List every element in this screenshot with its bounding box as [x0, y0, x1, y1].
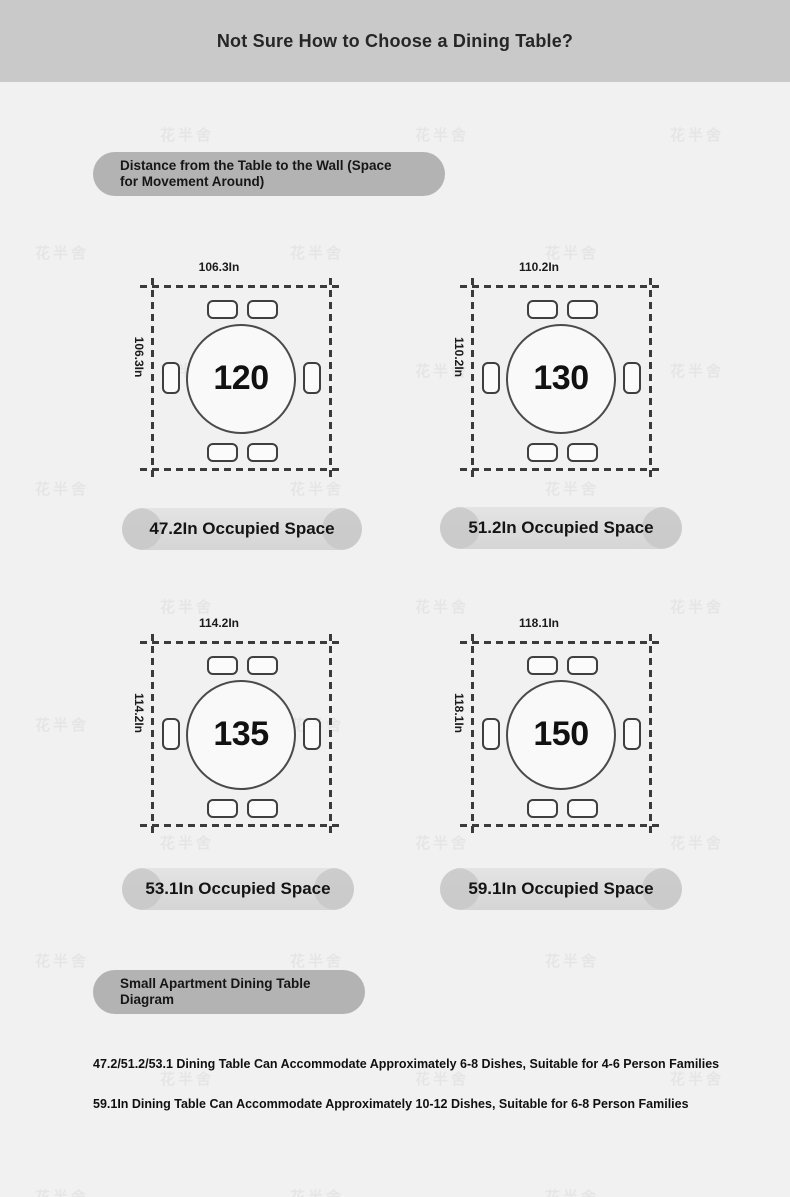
chair-top-left-icon — [207, 300, 238, 319]
occupied-space-badge-120: 47.2In Occupied Space — [122, 508, 362, 550]
chair-top-left-icon — [527, 300, 558, 319]
chair-top-right-icon — [247, 300, 278, 319]
dashed-boundary-right — [329, 634, 332, 834]
occupied-space-label: 53.1In Occupied Space — [145, 879, 330, 899]
dashed-boundary-bottom — [460, 468, 663, 471]
occupied-space-badge-130: 51.2In Occupied Space — [440, 507, 682, 549]
round-table-icon: 150 — [506, 680, 616, 790]
distance-section-badge: Distance from the Table to the Wall (Spa… — [93, 152, 445, 196]
chair-left-icon — [162, 362, 180, 394]
chair-left-icon — [162, 718, 180, 750]
chair-top-right-icon — [567, 300, 598, 319]
height-dimension-label: 114.2In — [132, 692, 146, 732]
round-table-icon: 135 — [186, 680, 296, 790]
dashed-boundary-top — [140, 641, 343, 644]
width-dimension-label: 118.1In — [519, 616, 559, 630]
occupied-space-badge-135: 53.1In Occupied Space — [122, 868, 354, 910]
chair-top-left-icon — [207, 656, 238, 675]
chair-bottom-right-icon — [247, 443, 278, 462]
chair-right-icon — [623, 718, 641, 750]
height-dimension-label: 110.2In — [452, 336, 466, 376]
chair-right-icon — [303, 718, 321, 750]
dashed-boundary-left — [471, 278, 474, 478]
chair-top-left-icon — [527, 656, 558, 675]
page-title: Not Sure How to Choose a Dining Table? — [217, 31, 573, 52]
chair-bottom-left-icon — [527, 799, 558, 818]
occupied-space-badge-150: 59.1In Occupied Space — [440, 868, 682, 910]
dashed-boundary-right — [649, 634, 652, 834]
chair-bottom-right-icon — [247, 799, 278, 818]
chair-right-icon — [623, 362, 641, 394]
distance-section-label: Distance from the Table to the Wall (Spa… — [120, 158, 405, 191]
chair-left-icon — [482, 362, 500, 394]
chair-bottom-left-icon — [527, 443, 558, 462]
chair-bottom-left-icon — [207, 799, 238, 818]
dashed-boundary-bottom — [140, 824, 343, 827]
dashed-boundary-bottom — [460, 824, 663, 827]
note-line-2: 59.1In Dining Table Can Accommodate Appr… — [93, 1097, 689, 1111]
round-table-icon: 130 — [506, 324, 616, 434]
diagram-table-135: 114.2In 114.2In 135 — [152, 643, 330, 826]
dashed-boundary-top — [460, 641, 663, 644]
dashed-boundary-right — [649, 278, 652, 478]
small-apartment-section-label: Small Apartment Dining Table Diagram — [120, 976, 325, 1009]
width-dimension-label: 114.2In — [199, 616, 239, 630]
dashed-boundary-top — [140, 285, 343, 288]
height-dimension-label: 118.1In — [452, 692, 466, 732]
dashed-boundary-top — [460, 285, 663, 288]
dashed-boundary-bottom — [140, 468, 343, 471]
occupied-space-label: 59.1In Occupied Space — [468, 879, 653, 899]
dashed-boundary-left — [471, 634, 474, 834]
table-size-label: 120 — [213, 359, 268, 398]
chair-bottom-right-icon — [567, 443, 598, 462]
table-size-label: 150 — [533, 715, 588, 754]
header-bar: Not Sure How to Choose a Dining Table? — [0, 0, 790, 82]
diagram-table-120: 106.3In 106.3In 120 — [152, 287, 330, 470]
dashed-boundary-left — [151, 634, 154, 834]
chair-right-icon — [303, 362, 321, 394]
dashed-boundary-right — [329, 278, 332, 478]
chair-bottom-right-icon — [567, 799, 598, 818]
chair-bottom-left-icon — [207, 443, 238, 462]
chair-left-icon — [482, 718, 500, 750]
diagram-table-150: 118.1In 118.1In 150 — [472, 643, 650, 826]
chair-top-right-icon — [567, 656, 598, 675]
table-size-label: 130 — [533, 359, 588, 398]
note-line-1: 47.2/51.2/53.1 Dining Table Can Accommod… — [93, 1057, 719, 1071]
dining-table-guide-page: 花半舍花半舍花半舍花半舍花半舍花半舍花半舍花半舍花半舍花半舍花半舍花半舍花半舍花… — [0, 0, 790, 1197]
diagram-table-130: 110.2In 110.2In 130 — [472, 287, 650, 470]
small-apartment-section-badge: Small Apartment Dining Table Diagram — [93, 970, 365, 1014]
width-dimension-label: 110.2In — [519, 260, 559, 274]
chair-top-right-icon — [247, 656, 278, 675]
occupied-space-label: 51.2In Occupied Space — [468, 518, 653, 538]
width-dimension-label: 106.3In — [199, 260, 240, 274]
height-dimension-label: 106.3In — [132, 336, 146, 377]
round-table-icon: 120 — [186, 324, 296, 434]
table-size-label: 135 — [213, 715, 268, 754]
occupied-space-label: 47.2In Occupied Space — [149, 519, 334, 539]
dashed-boundary-left — [151, 278, 154, 478]
